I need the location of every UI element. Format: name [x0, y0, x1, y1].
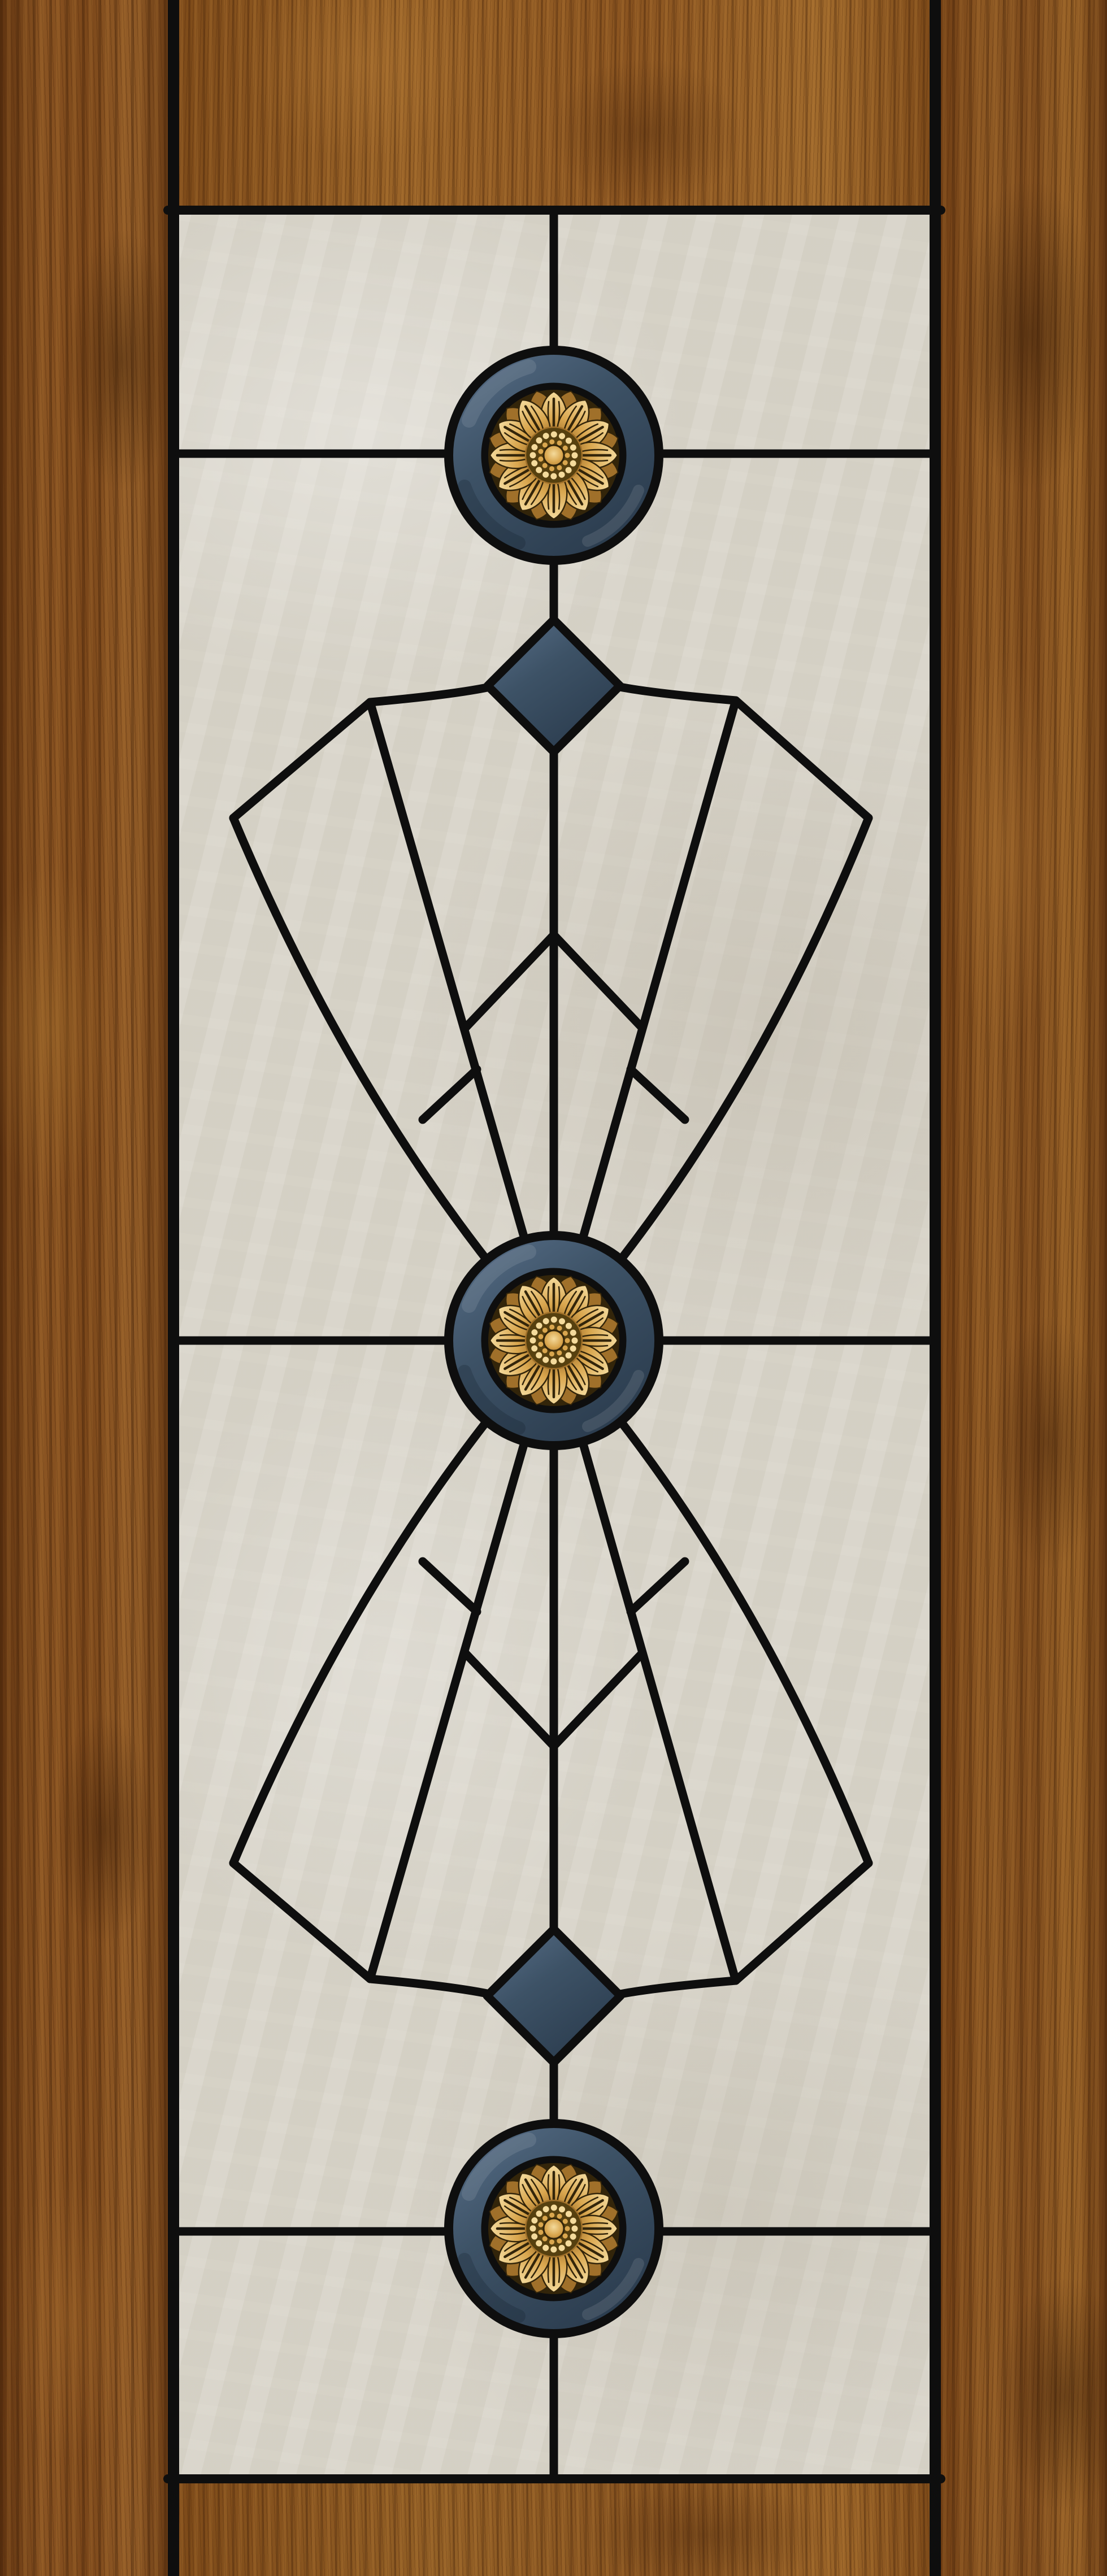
- sunflower-medallion-top: [449, 350, 659, 560]
- sunflower-medallion-bottom: [449, 2124, 659, 2334]
- sunflower-medallion-center: [449, 1235, 659, 1446]
- wood-door: [0, 0, 1107, 2576]
- fan-top-edge: [620, 1863, 869, 1994]
- stained-glass-leadwork: [0, 0, 1107, 2576]
- fan-top-edge: [233, 687, 490, 818]
- fan-chord: [423, 1561, 477, 1612]
- fan-chord: [631, 1561, 685, 1612]
- fan-top-edge: [620, 687, 869, 818]
- fan-chord: [631, 1069, 685, 1120]
- slate-diamond-top: [488, 620, 620, 752]
- slate-diamond-bottom: [487, 1929, 620, 2062]
- fan-chord: [423, 1069, 477, 1120]
- fan-top-edge: [233, 1863, 490, 1994]
